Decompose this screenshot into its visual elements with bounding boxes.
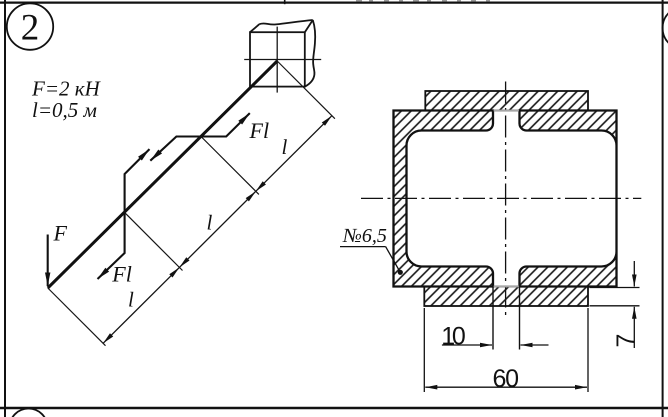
svg-text:№6,5: №6,5 [342,225,387,247]
svg-text:60: 60 [493,365,520,393]
svg-text:l: l [207,210,213,234]
svg-text:F: F [53,221,68,246]
svg-text:l: l [282,135,288,159]
svg-text:Fl: Fl [111,262,132,287]
svg-text:2: 2 [21,8,40,49]
svg-text:7: 7 [612,334,640,348]
svg-text:Fl: Fl [249,118,270,143]
svg-text:F=2 кН: F=2 кН [31,77,102,101]
svg-text:l: l [128,287,134,311]
svg-text:l=0,5 м: l=0,5 м [32,98,97,122]
svg-text:10: 10 [441,323,466,351]
